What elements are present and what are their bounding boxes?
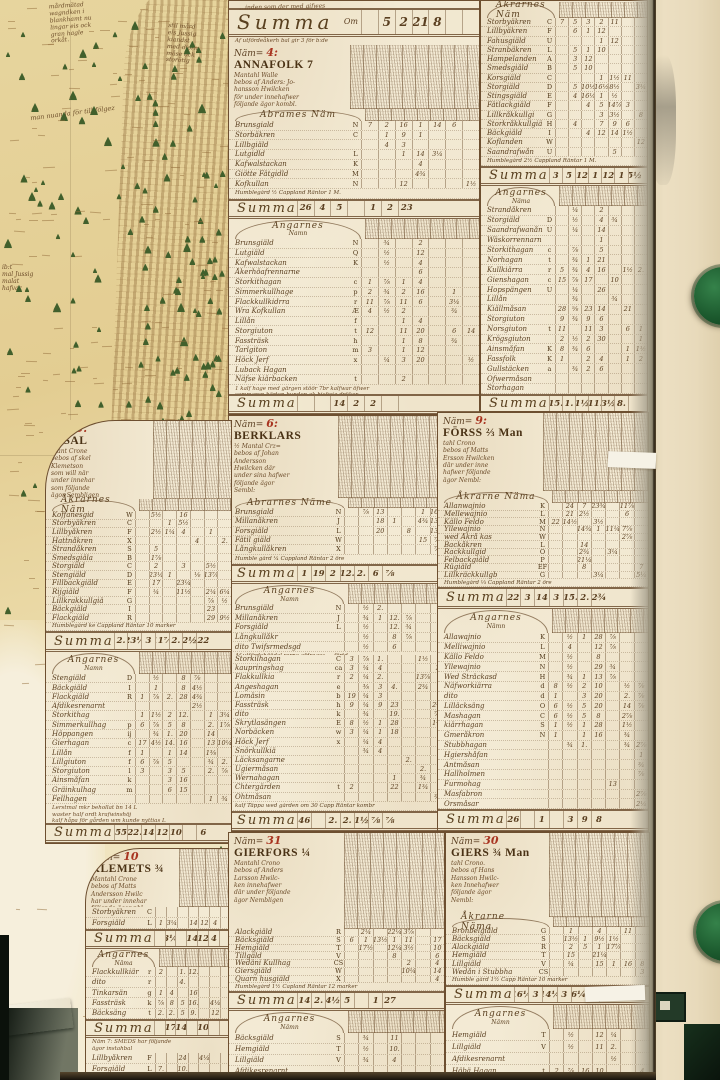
value-cell <box>555 138 568 146</box>
value-cell <box>373 633 387 642</box>
row-label: Lillbyåkren <box>86 1054 144 1062</box>
row-letter: t <box>333 783 344 791</box>
value-cell <box>605 799 619 808</box>
row-label: Skrytlasängen <box>229 719 333 727</box>
table-row: MillanåkrenJ1814¾13¾ <box>229 517 444 526</box>
value-cell: 6 <box>594 315 607 324</box>
value-cell <box>401 952 415 959</box>
value-cell <box>217 528 231 536</box>
table-row: StrandåkrenS5 <box>46 545 231 554</box>
value-cell: ¼ <box>568 206 581 215</box>
value-cell: 3 <box>557 987 571 1002</box>
value-cell <box>581 206 594 215</box>
summa-label: Summa <box>229 566 297 581</box>
value-cell <box>568 354 581 363</box>
value-cell: 8 <box>387 633 401 642</box>
summa-label: Summa <box>229 396 297 411</box>
value-cell: 1 <box>415 508 429 516</box>
value-cell: 1 <box>162 520 176 528</box>
value-cell <box>555 364 568 373</box>
value-cell <box>562 731 576 740</box>
row-label: Ofwermåsan <box>481 375 544 383</box>
row-label: Storkithagan <box>229 278 350 286</box>
row-letter: m <box>350 346 361 354</box>
value-cell <box>135 614 149 622</box>
table-row: KorsgiäldC11½11 <box>481 74 647 83</box>
value-cell: ⅞ <box>605 643 619 652</box>
value-cell: 5 <box>568 64 581 72</box>
value-cell: 4 <box>209 918 220 928</box>
value-cell <box>415 1055 429 1065</box>
row-label: Storgiuton <box>229 327 350 335</box>
value-cell: 2. <box>217 537 231 545</box>
table-row: Wäskorrennarn1 <box>481 236 647 246</box>
value-cell: 8 <box>401 527 415 535</box>
row-label: Forsgiäld <box>229 623 333 631</box>
value-cell <box>594 275 607 284</box>
value-cell: 21 <box>412 10 429 34</box>
value-cell <box>548 799 562 808</box>
value-cell <box>361 317 378 326</box>
value-cell <box>549 1041 563 1052</box>
value-cell: 2 <box>344 673 358 681</box>
value-cell <box>361 249 378 258</box>
value-cell: 15. <box>563 589 577 606</box>
row-letter: D <box>544 83 555 91</box>
value-cells <box>361 365 479 374</box>
value-cell: 8 <box>428 10 445 34</box>
value-cells: 3⅞1.1½ <box>344 655 444 663</box>
terrain-hatch <box>144 224 149 225</box>
value-cell <box>373 623 387 632</box>
row-letter: B <box>544 64 555 72</box>
value-cells: 8½1281¾ <box>344 719 444 727</box>
value-cell <box>373 545 387 553</box>
value-cell: 16 <box>594 265 607 274</box>
value-cell: 3½ <box>401 945 415 952</box>
terrain-hatch <box>43 167 55 169</box>
table-row: Näfworkiärrad8½210½⅞ <box>438 682 648 692</box>
row-note: Humble gård 1½ Capp Räntar 10 marker <box>446 977 649 983</box>
subtable-title-line: Näma <box>512 199 530 206</box>
table-row: Humblegård 1½ Capland Räntar 12 marker <box>229 983 444 991</box>
value-cell <box>209 907 220 917</box>
terrain-hatch <box>43 352 51 353</box>
table-row: FahusgiäldU112 <box>481 37 647 46</box>
value-cell: ½ <box>358 642 372 651</box>
value-cells: ½8⅞ <box>135 674 231 682</box>
value-cell <box>462 170 479 179</box>
section-header: Näm= 6:BERKLARS½ Mantal Crz=bebos af Joh… <box>229 416 444 498</box>
table-row: LutgidldL1143¼ <box>229 150 479 160</box>
row-label: Afdikesrenarnt <box>46 702 124 710</box>
row-label: Lutgidld <box>229 150 350 158</box>
value-cell: ½ <box>358 623 372 632</box>
row-label: Hattnåkren <box>46 537 124 545</box>
value-cell <box>608 354 621 363</box>
row-letter: c <box>544 246 555 254</box>
value-cell <box>401 664 415 672</box>
value-cell <box>217 702 231 710</box>
value-cells: ¾4 <box>344 1055 444 1065</box>
table-row: Afdikesrenarnt2½ <box>46 702 231 711</box>
value-cell <box>415 1033 429 1043</box>
value-cell <box>445 131 462 140</box>
section-header: Näm= 30GIERS ¾ Mantahl Crono.bebos af Ha… <box>446 833 649 917</box>
value-cells: 2.23¼311⅞2.2½22 <box>114 633 210 649</box>
table-row: BäckgiäldI412141½ <box>481 129 647 138</box>
value-cell <box>608 206 621 215</box>
value-cell <box>401 642 415 651</box>
value-cell: 9 <box>581 315 594 324</box>
value-cell <box>445 365 462 374</box>
value-cell <box>373 968 387 975</box>
value-cell <box>548 672 562 681</box>
tree-icon <box>21 490 27 497</box>
value-cell: 4 <box>581 265 594 274</box>
value-cell <box>358 976 372 983</box>
value-cell <box>373 783 387 791</box>
value-cell: 10 <box>197 1021 208 1035</box>
section-number: Näm= 6: <box>234 417 336 430</box>
row-label: Stingsgiäld <box>481 92 544 100</box>
value-cell: 6¼ <box>571 987 585 1002</box>
value-cell <box>162 702 176 710</box>
value-cell: 17⅞ <box>606 944 620 951</box>
value-cell <box>578 1053 592 1064</box>
table-rows: Strandåkren¼2StorgiäldD½4¾SaandrafwanånU… <box>481 206 647 394</box>
value-cell <box>361 140 378 149</box>
value-cell <box>135 683 149 691</box>
value-cell <box>605 692 619 701</box>
value-cells: ¾2 <box>361 239 479 248</box>
terrain-hatch <box>74 256 81 257</box>
row-label: dito <box>86 978 144 986</box>
row-label: Kiällmåsan <box>481 305 544 313</box>
value-cell <box>462 239 479 248</box>
value-cell <box>135 776 149 784</box>
value-cells: 4. <box>155 977 231 986</box>
value-cell: 2. <box>325 813 339 828</box>
row-letter: A <box>544 55 555 63</box>
value-cell <box>548 503 562 510</box>
table-row: KafwalstackanK½4 <box>229 258 479 268</box>
value-cell: ¾ <box>605 662 619 671</box>
terrain-hatch <box>146 237 153 238</box>
table-section-klemets: Näm= 10KLEMETS ¾Mantahl Cronebebos af Ma… <box>85 848 232 1076</box>
row-letter: I <box>124 605 135 613</box>
value-cell <box>605 518 619 525</box>
value-cell <box>217 554 231 562</box>
value-cell: 21 <box>562 511 576 518</box>
value-cell <box>361 10 378 34</box>
row-label: Hallholmen <box>438 770 537 778</box>
value-cell <box>190 545 204 553</box>
row-label: Bäcksäng <box>86 1009 144 1017</box>
table-row: Storkithag11½212.13¼ <box>46 711 231 720</box>
row-letter: N <box>537 663 548 671</box>
value-cell <box>378 268 395 277</box>
row-label: Stranbäkren <box>481 46 544 54</box>
value-cell <box>344 960 358 967</box>
value-cells: 191 <box>361 131 479 140</box>
section-number: Näm= 31 <box>234 834 342 847</box>
tree-icon <box>97 327 101 332</box>
value-cell: ⅞ <box>358 508 372 516</box>
value-cell <box>549 1029 563 1040</box>
value-cell <box>387 747 401 755</box>
value-cell <box>361 160 378 169</box>
value-cell <box>568 111 581 119</box>
table-row: Hgiershåfan1 <box>438 750 648 760</box>
value-cell <box>358 968 372 975</box>
value-cell: ¼ <box>358 701 372 709</box>
value-cell <box>204 693 218 701</box>
summa-band: Summa171410 <box>86 1019 231 1038</box>
value-cell <box>605 653 619 662</box>
value-cell: 2 <box>325 566 339 581</box>
table-row: Gienshaganc15⅞1710 <box>481 275 647 285</box>
value-cell: 4 <box>568 92 581 100</box>
value-cell: ⅜ <box>358 683 372 691</box>
value-cell <box>378 317 395 326</box>
tree-icon <box>3 239 11 248</box>
row-letter: T <box>333 1045 344 1053</box>
value-cell: 8 <box>577 564 591 571</box>
value-cell <box>430 1055 444 1065</box>
summa-band: Summa261398 <box>438 809 648 831</box>
value-cell: ¾ <box>149 730 163 738</box>
value-cell <box>563 1053 577 1064</box>
value-cell: 10 <box>430 945 444 952</box>
value-cell: 22 <box>548 518 562 525</box>
value-cell <box>549 935 563 942</box>
table-row: BrunsgialdN72161146 <box>229 121 479 131</box>
value-cell <box>344 545 358 553</box>
terrain-hatch <box>31 181 36 182</box>
terrain-hatch <box>165 213 171 214</box>
value-cell: 15 <box>555 275 568 284</box>
value-cell <box>176 545 190 553</box>
value-cell <box>555 83 568 91</box>
value-cell: ½ <box>562 701 576 710</box>
value-cell <box>344 1033 358 1043</box>
value-cell <box>415 614 429 623</box>
value-cell <box>415 633 429 642</box>
value-cells: 121½ <box>361 179 479 188</box>
value-cell: ½ <box>462 356 479 365</box>
value-cell <box>395 160 412 169</box>
value-cell: 2 <box>395 375 412 384</box>
row-label: Bäcksgiäld <box>229 1034 333 1042</box>
table-row: Strandåkren¼2 <box>481 206 647 216</box>
value-cells: ½6 <box>344 642 444 651</box>
value-cell: 2 <box>581 364 594 373</box>
value-cell <box>373 642 387 651</box>
value-cell: 9½ <box>217 614 231 622</box>
value-cell <box>605 564 619 571</box>
tree-icon <box>63 63 68 69</box>
value-cell: 3 <box>135 767 149 775</box>
subtable-title: AngarnesNämn <box>444 610 548 633</box>
value-cell: 6 <box>430 952 444 959</box>
terrain-hatch <box>144 160 154 161</box>
row-letter: p <box>350 288 361 296</box>
row-label: Lillkrakkullgiä <box>46 597 124 605</box>
value-cell: 27 <box>382 993 396 1008</box>
value-cells: 43 <box>361 140 479 149</box>
value-cell: 3 <box>373 683 387 691</box>
scanned-map-photo: mårdmätad wagndken i blankhamt nu lingar… <box>0 0 720 1080</box>
value-cell: 17 <box>135 739 149 747</box>
row-label: Höck Jerf <box>229 738 333 746</box>
value-cell: 23 <box>398 201 415 216</box>
value-cell <box>605 790 619 799</box>
value-cell <box>155 977 166 986</box>
table-row: StingsgiäldE416¼1½ <box>481 92 647 101</box>
table-row: Ugiermåsan2. <box>229 765 444 774</box>
value-cells: 23¼1⅛13⅞ <box>135 571 231 579</box>
row-label: Stubbhagan <box>438 741 537 749</box>
row-label: Hemgiäld <box>446 1031 538 1039</box>
row-label: Storbäkren <box>229 131 350 139</box>
value-cell: ¾ <box>217 795 231 803</box>
value-cell <box>568 37 581 45</box>
row-letter: x <box>350 356 361 364</box>
table-row: SaandrafwånU5 <box>481 148 647 157</box>
value-cell: 28 <box>591 721 605 730</box>
row-label: Hemgiäld <box>229 1045 333 1053</box>
value-cell: 14 <box>462 326 479 335</box>
section-title: BERKLARS <box>234 430 336 442</box>
value-cell <box>594 138 607 146</box>
value-cell <box>428 170 445 179</box>
row-letter: L <box>537 643 548 651</box>
summa-label: Summa <box>86 931 154 946</box>
subtable-header: AngarnesNämn <box>229 1011 444 1033</box>
value-cell <box>162 545 176 553</box>
row-label: Lillgiäld <box>446 960 538 968</box>
value-cell: 20 <box>591 692 605 701</box>
value-cell <box>217 511 231 519</box>
value-cell <box>548 572 562 579</box>
tree-icon <box>25 386 31 392</box>
value-cell: ½ <box>568 335 581 344</box>
row-label: Lillbyåkren <box>46 528 124 536</box>
value-cell <box>373 774 387 782</box>
value-cell: 12. <box>387 614 401 623</box>
value-cell: 20 <box>412 356 429 365</box>
terrain-hatch <box>10 140 19 142</box>
value-cell: 22¼ <box>387 929 401 936</box>
row-letter: K <box>350 259 361 267</box>
value-cell: 4 <box>387 1055 401 1065</box>
row-label: Höck Jerf <box>229 356 350 364</box>
value-cell: 1 <box>555 354 568 363</box>
value-cell <box>415 1044 429 1054</box>
value-cell <box>415 929 429 936</box>
value-cell <box>162 614 176 622</box>
subtable-title: AngarnesNämn <box>235 1012 344 1033</box>
value-cell: 4¾ <box>415 517 429 525</box>
value-cell <box>555 101 568 109</box>
value-cell <box>591 564 605 571</box>
row-label: Afdikesrenarnt <box>446 1055 538 1063</box>
table-row: Humblegård 2½ Cappland Räntar 1 M. <box>481 157 647 166</box>
row-letter: G <box>537 571 548 579</box>
terrain-hatch <box>111 95 120 97</box>
value-cell <box>190 758 204 766</box>
value-cell: 5 <box>176 767 190 775</box>
table-rows: StorkilhaganC3⅞1.1½kaupringshagca3¼41Fla… <box>229 655 444 811</box>
value-cell <box>198 1009 209 1018</box>
tree-icon <box>53 303 61 313</box>
section-description: Mantahl Cronebebos af MattsAndersson Hwi… <box>91 876 177 907</box>
value-cell: 3 <box>520 589 534 606</box>
row-letter: X <box>124 537 135 545</box>
row-letter: t <box>350 375 361 383</box>
value-cell <box>373 1055 387 1065</box>
value-cell <box>190 711 204 719</box>
row-label: Kafwalstackan <box>229 160 350 168</box>
row-label: Fassträsk <box>229 337 350 345</box>
table-row: StorbäkrenC191 <box>229 131 479 141</box>
value-cell <box>428 307 445 316</box>
table-section-gierfors: Näm= 31GIERFORS ¼Mantahl Cronobebos af A… <box>228 832 445 1076</box>
value-cell: 5 <box>594 246 607 255</box>
value-cell <box>555 226 568 235</box>
value-cell <box>462 140 479 149</box>
value-cell: 2 <box>364 396 381 411</box>
value-cell <box>344 976 358 983</box>
value-cell <box>548 526 562 533</box>
value-cell <box>378 346 395 355</box>
value-cell: ½ <box>568 216 581 225</box>
value-cell <box>562 799 576 808</box>
value-cell <box>608 384 621 393</box>
table-rows: Flackkullkiärr21.12.ditor4.Tinkarsäng141… <box>86 967 231 1019</box>
value-cell: 6 <box>162 785 176 793</box>
column-heads-handwriting <box>338 416 444 498</box>
table-row: Ohtmåsan¾ <box>229 793 444 802</box>
value-cell <box>562 750 576 759</box>
value-cell: ¾ <box>568 265 581 274</box>
value-cells: 5 <box>135 545 231 553</box>
section-header: Näm= 10KLEMETS ¾Mantahl Cronebebos af Ma… <box>86 849 231 907</box>
value-cell <box>135 520 149 528</box>
value-cell: 2. <box>606 1041 620 1052</box>
value-cell <box>378 375 395 384</box>
value-cell: 10 <box>581 64 594 72</box>
photo-edge-sliver <box>0 935 9 1080</box>
value-cell <box>154 931 165 946</box>
terrain-hatch <box>79 366 88 368</box>
value-cell: 11 <box>555 325 568 334</box>
table-note: Näm 7: SMEDS har följandeägor instahbal <box>86 1038 231 1053</box>
value-cell <box>591 511 605 518</box>
value-cell: ¾ <box>568 295 581 304</box>
value-cell: 1 <box>548 731 562 740</box>
value-cell <box>401 673 415 681</box>
value-cell: 4 <box>592 927 606 934</box>
value-cell: 13½ <box>373 937 387 944</box>
value-cell <box>398 396 415 411</box>
value-cell <box>415 976 429 983</box>
value-cell <box>555 246 568 255</box>
row-label: Långkullåkren <box>229 545 333 553</box>
value-cells: 1¾ <box>135 795 231 803</box>
value-cell <box>177 918 188 928</box>
